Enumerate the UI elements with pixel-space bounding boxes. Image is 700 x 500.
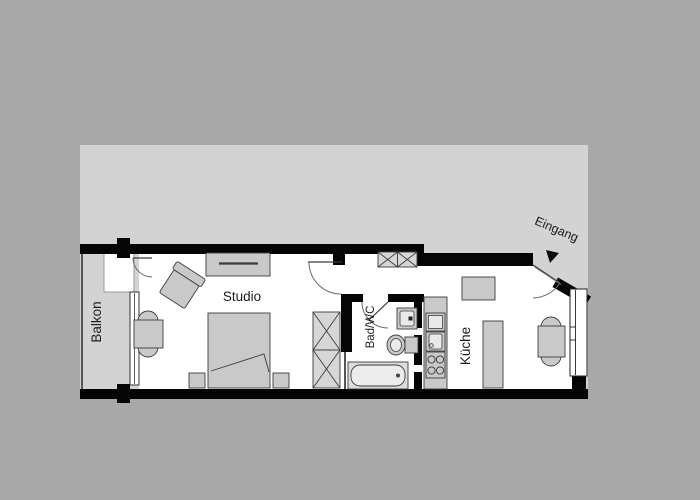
kitchen-sink <box>426 332 445 351</box>
label-kitchen: Küche <box>458 327 473 365</box>
wall-top-right <box>424 253 533 266</box>
dining-table <box>134 320 163 348</box>
balcony-door-niche <box>104 253 134 292</box>
nightstand-left <box>189 373 205 388</box>
label-studio: Studio <box>223 289 261 304</box>
kitchen-tall-counter <box>483 321 503 388</box>
washbasin <box>397 308 417 329</box>
bathtub <box>348 362 408 389</box>
kitchen-dining-set <box>538 317 565 366</box>
balcony-outer-wall <box>81 253 83 393</box>
kitchen-window <box>570 289 587 376</box>
wall-bath-left-thin <box>344 352 346 389</box>
toilet <box>387 335 418 355</box>
dining-table <box>538 326 565 357</box>
double-bed <box>208 313 270 388</box>
wall-notch-2 <box>414 365 422 372</box>
label-bathroom: Bad/WC <box>365 306 377 349</box>
hall-closet <box>378 252 417 267</box>
label-balcony: Balkon <box>89 301 104 342</box>
wall-bath-left <box>341 294 352 352</box>
apartment-floorplan: Balkon Studio Bad/WC Küche Eingang <box>0 0 700 500</box>
wall-top-step <box>417 253 424 266</box>
wall-bottom <box>80 389 588 399</box>
wall-post-bottom <box>117 384 130 403</box>
studio-wardrobe <box>313 312 340 388</box>
kitchen-wall-cabinet <box>462 277 495 300</box>
kitchen-stove <box>426 352 445 378</box>
nightstand-right <box>273 373 289 388</box>
wall-top-main <box>80 244 424 254</box>
floorplan-canvas: Balkon Studio Bad/WC Küche Eingang <box>0 0 700 500</box>
wall-bath-top-left <box>352 294 363 302</box>
wall-post-top <box>117 238 130 258</box>
wall-studio-door-stub <box>333 254 345 265</box>
bathtub-drain <box>396 374 400 378</box>
